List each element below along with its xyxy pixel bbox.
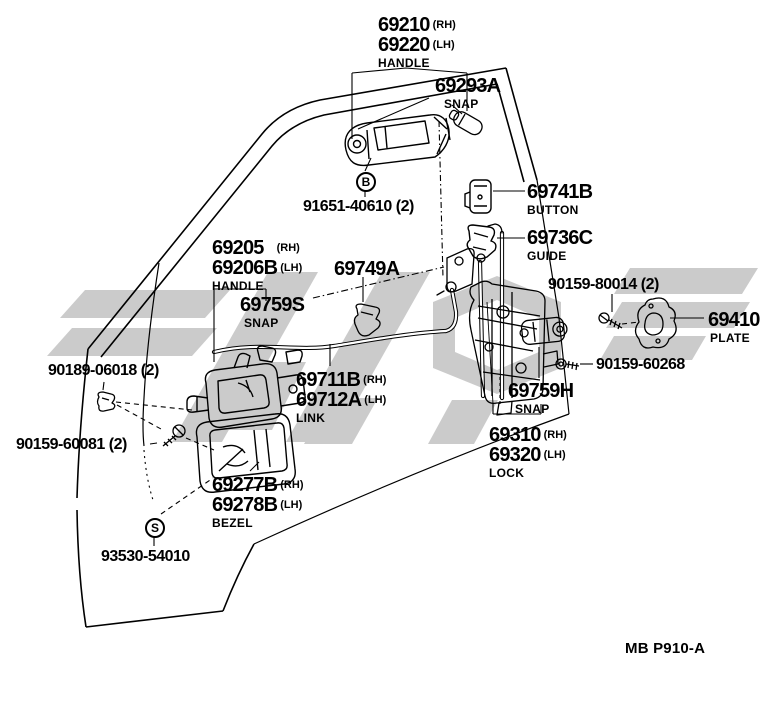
part-number: 69220 [378,34,430,56]
label-bolt-91651: 91651-40610 (2) [303,199,414,215]
part-number: 69759H [508,380,573,402]
label-snap-69759h: 69759H SNAP [508,381,573,415]
label-snap-69749a: 69749A [334,259,399,279]
part-caption: HANDLE [378,56,430,70]
bolt-marker-b: B [356,172,376,192]
label-bezel: 69277B(RH) 69278B(LH) BEZEL [212,475,303,529]
part-number: 69320 [489,444,541,466]
label-button-69741b: 69741B BUTTON [527,182,592,216]
part-number: 69741B [527,181,592,203]
part-number: 90159-60081 (2) [16,436,127,453]
part-number: 69759S [240,294,304,316]
label-lock: 69310(RH) 69320(LH) LOCK [489,425,567,479]
label-guide-69736c: 69736C GUIDE [527,228,592,262]
label-snap-69293a: 69293A SNAP [435,76,500,110]
label-screw-90159-80014: 90159-80014 (2) [548,277,659,293]
label-screw-93530-54010: 93530-54010 [101,549,190,565]
part-number: 90159-80014 (2) [548,276,659,293]
part-number: 91651-40610 (2) [303,198,414,215]
side-suffix: (LH) [544,449,566,461]
part-outer-handle-drawing [345,115,450,166]
part-caption: GUIDE [527,249,567,263]
part-caption: HANDLE [212,279,264,293]
part-number: 69210 [378,14,430,36]
parts-diagram-page: B S 69210(RH) 69220(LH) HANDLE 69293A SN… [0,0,784,702]
label-plate-69410: 69410 PLATE [708,310,760,344]
label-screw-90159-60268: 90159-60268 [596,357,685,373]
side-suffix: (RH) [363,374,386,386]
label-clip-90189-06018: 90189-06018 (2) [48,363,159,379]
side-suffix: (RH) [544,429,567,441]
side-suffix: (RH) [433,19,456,31]
diagram-code: MB P910-A [625,640,705,657]
side-suffix: (LH) [280,499,302,511]
screw-marker-s: S [145,518,165,538]
side-suffix: (RH) [280,479,303,491]
part-number: 69206B [212,257,277,279]
part-number: 69749A [334,258,399,280]
part-number: 69278B [212,494,277,516]
label-inner-handle: 69205(RH) 69206B(LH) HANDLE [212,238,302,292]
label-link: 69711B(RH) 69712A(LH) LINK [296,370,386,424]
part-number: 69277B [212,474,277,496]
part-number: 69410 [708,309,760,331]
part-number: 93530-54010 [101,548,190,565]
part-caption: PLATE [710,331,750,345]
part-caption: LINK [296,411,325,425]
part-number: 90159-60268 [596,356,685,373]
label-screw-90159-60081: 90159-60081 (2) [16,437,127,453]
part-button-drawing [465,180,491,213]
part-caption: BEZEL [212,516,253,530]
part-caption: SNAP [444,97,479,111]
side-suffix: (RH) [277,242,300,254]
part-caption: BUTTON [527,203,579,217]
part-number: 69736C [527,227,592,249]
part-clip-90189-drawing [98,392,115,411]
label-outer-handle: 69210(RH) 69220(LH) HANDLE [378,15,456,69]
side-suffix: (LH) [433,39,455,51]
part-snap-69293a-drawing [447,107,485,137]
diagram-line-art [0,0,784,702]
part-number: 69293A [435,75,500,97]
part-number: 69711B [296,369,360,391]
side-suffix: (LH) [364,394,386,406]
part-caption: SNAP [244,316,279,330]
label-snap-69759s: 69759S SNAP [240,295,304,329]
side-suffix: (LH) [280,262,302,274]
part-number: 69712A [296,389,361,411]
part-number: 69205 [212,237,264,259]
part-caption: SNAP [515,402,550,416]
part-number: 90189-06018 (2) [48,362,159,379]
part-caption: LOCK [489,466,524,480]
part-number: 69310 [489,424,541,446]
